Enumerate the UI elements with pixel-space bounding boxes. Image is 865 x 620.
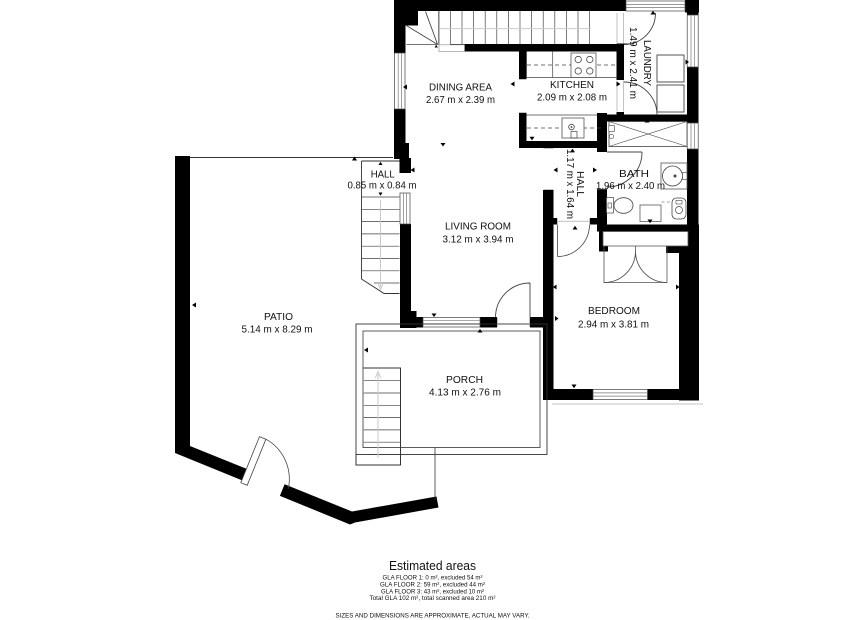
svg-text:SIZES AND DIMENSIONS ARE APPRO: SIZES AND DIMENSIONS ARE APPROXIMATE, AC… <box>336 613 530 620</box>
svg-text:PORCH: PORCH <box>446 374 483 386</box>
svg-text:BEDROOM: BEDROOM <box>588 305 640 317</box>
svg-text:1.96 m x 2.40 m: 1.96 m x 2.40 m <box>596 180 665 192</box>
svg-text:3.12 m x 3.94 m: 3.12 m x 3.94 m <box>443 234 514 246</box>
svg-text:DINING AREA: DINING AREA <box>429 82 492 94</box>
svg-text:BATH: BATH <box>619 168 649 180</box>
svg-text:Total GLA 102 m², total scanne: Total GLA 102 m², total scanned area 210… <box>370 595 497 602</box>
svg-text:0.85 m x 0.84 m: 0.85 m x 0.84 m <box>348 180 417 192</box>
svg-text:GLA FLOOR 1: 0 m², excluded 54: GLA FLOOR 1: 0 m², excluded 54 m² <box>383 575 484 582</box>
svg-text:5.14 m x 8.29 m: 5.14 m x 8.29 m <box>242 324 313 336</box>
svg-text:KITCHEN: KITCHEN <box>550 79 594 91</box>
svg-text:PATIO: PATIO <box>264 311 293 323</box>
svg-text:LIVING ROOM: LIVING ROOM <box>445 221 511 233</box>
svg-text:4.13 m x 2.76 m: 4.13 m x 2.76 m <box>429 387 501 399</box>
svg-text:1.17 m x 1.64 m: 1.17 m x 1.64 m <box>564 149 576 219</box>
svg-text:2.67 m x 2.39 m: 2.67 m x 2.39 m <box>426 94 495 106</box>
svg-text:2.09 m x 2.08 m: 2.09 m x 2.08 m <box>537 92 607 104</box>
svg-text:Estimated areas: Estimated areas <box>389 558 476 573</box>
svg-text:LAUNDRY: LAUNDRY <box>641 40 653 86</box>
svg-text:1.49 m x 2.41 m: 1.49 m x 2.41 m <box>627 27 639 99</box>
svg-text:2.94 m x 3.81 m: 2.94 m x 3.81 m <box>578 319 649 331</box>
